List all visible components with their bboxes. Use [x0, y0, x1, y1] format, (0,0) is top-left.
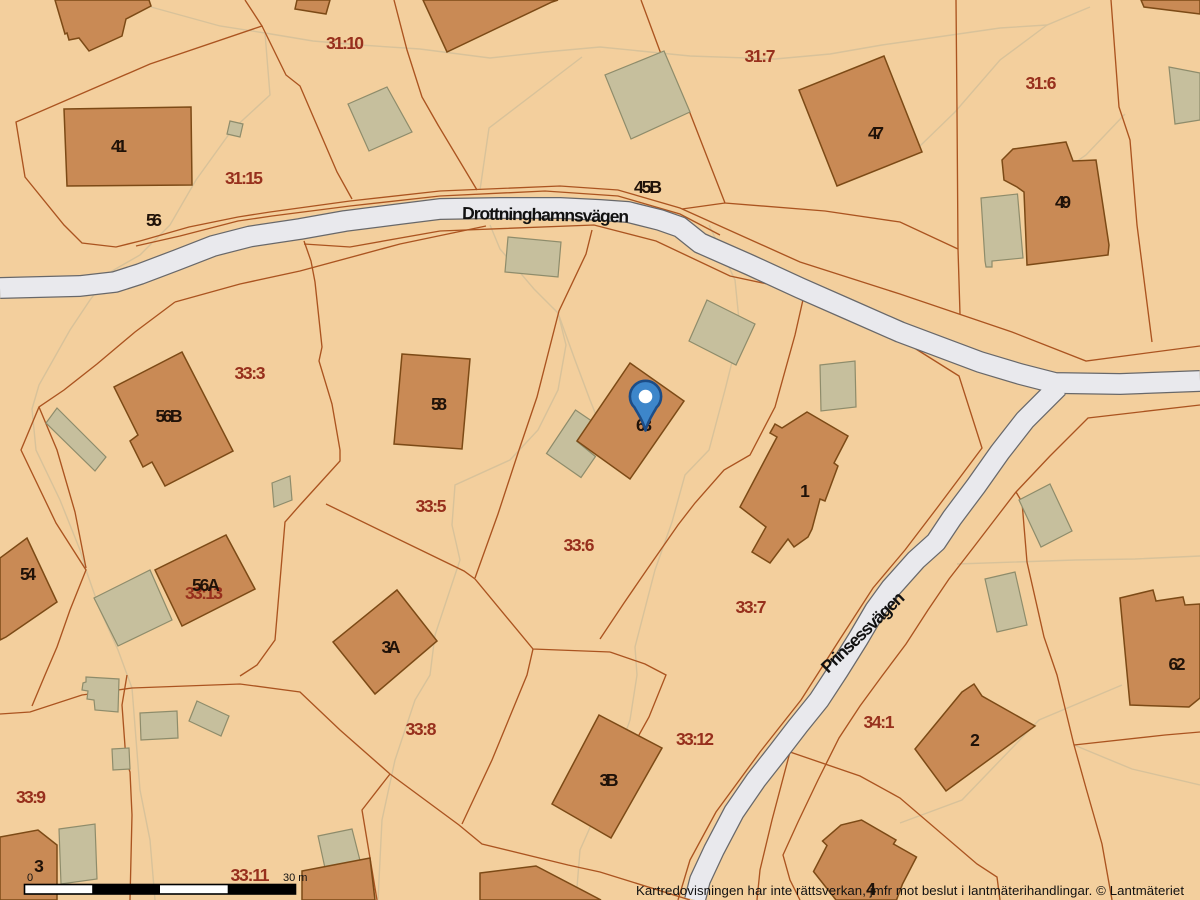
- svg-text:33:8: 33:8: [406, 719, 437, 739]
- svg-text:33:5: 33:5: [416, 496, 447, 516]
- svg-text:41: 41: [111, 136, 127, 156]
- svg-text:33:6: 33:6: [564, 535, 595, 555]
- svg-text:33:11: 33:11: [231, 865, 270, 885]
- svg-text:54: 54: [20, 564, 36, 584]
- svg-text:33:12: 33:12: [676, 729, 714, 749]
- svg-text:49: 49: [1055, 192, 1071, 212]
- svg-text:30 m: 30 m: [283, 872, 307, 884]
- svg-text:1: 1: [800, 481, 810, 501]
- svg-text:31:7: 31:7: [745, 46, 776, 66]
- svg-text:33:7: 33:7: [736, 597, 767, 617]
- svg-text:3: 3: [34, 856, 44, 876]
- svg-text:31:15: 31:15: [225, 168, 263, 188]
- svg-text:31:10: 31:10: [326, 33, 364, 53]
- svg-text:33:3: 33:3: [235, 363, 266, 383]
- svg-text:31:6: 31:6: [1026, 73, 1057, 93]
- svg-text:2: 2: [970, 730, 980, 750]
- svg-text:56B: 56B: [156, 406, 183, 426]
- svg-text:58: 58: [431, 394, 447, 414]
- svg-text:33:9: 33:9: [16, 787, 46, 807]
- svg-text:47: 47: [868, 123, 884, 143]
- svg-text:Drottninghamnsvägen: Drottninghamnsvägen: [462, 203, 629, 226]
- svg-text:56A: 56A: [192, 575, 220, 595]
- svg-text:3B: 3B: [600, 770, 619, 790]
- svg-text:62: 62: [1169, 654, 1186, 674]
- svg-text:0: 0: [27, 872, 33, 884]
- svg-text:45B: 45B: [634, 177, 662, 197]
- svg-text:Kartredovisningen har inte rät: Kartredovisningen har inte rättsverkan, …: [636, 883, 1184, 898]
- svg-text:34:1: 34:1: [864, 712, 895, 732]
- svg-text:3A: 3A: [382, 637, 401, 657]
- svg-text:56: 56: [146, 210, 162, 230]
